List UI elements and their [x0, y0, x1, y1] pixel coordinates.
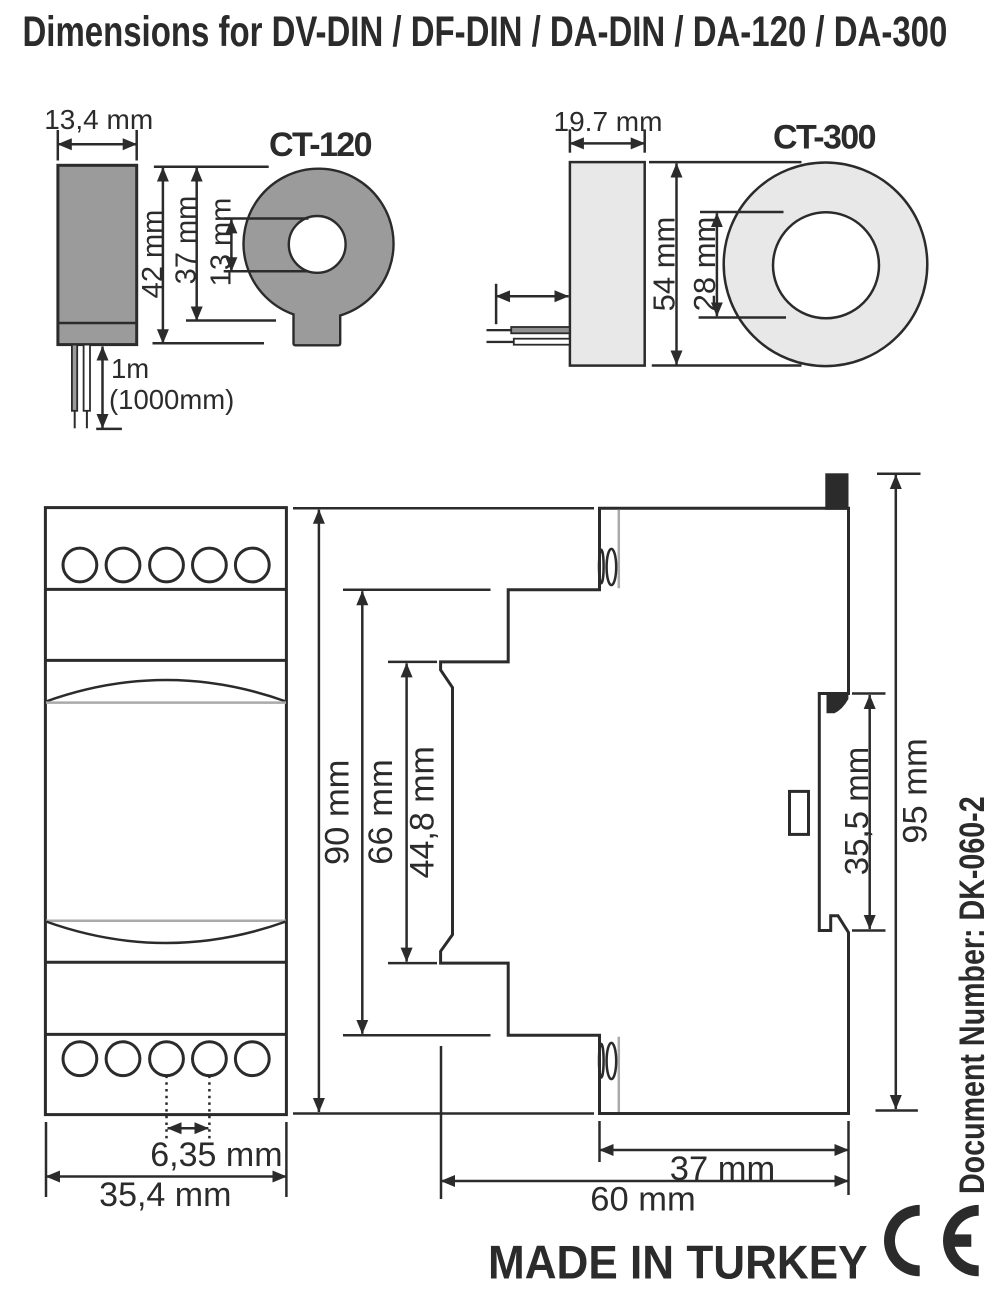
svg-text:Document Number: DK-060-2: Document Number: DK-060-2: [952, 796, 991, 1194]
svg-text:90 mm: 90 mm: [319, 760, 357, 865]
svg-text:MADE IN TURKEY: MADE IN TURKEY: [488, 1236, 868, 1289]
svg-text:Dimensions for DV-DIN / DF-DIN: Dimensions for DV-DIN / DF-DIN / DA-DIN …: [23, 9, 948, 56]
svg-text:95 mm: 95 mm: [897, 738, 935, 843]
svg-text:1m: 1m: [111, 353, 149, 384]
svg-text:42 mm: 42 mm: [137, 210, 169, 299]
svg-text:35,4 mm: 35,4 mm: [99, 1176, 231, 1214]
svg-text:19.7 mm: 19.7 mm: [554, 106, 663, 137]
svg-text:37 mm: 37 mm: [171, 196, 203, 285]
svg-text:13 mm: 13 mm: [205, 198, 237, 287]
svg-text:CT-300: CT-300: [773, 119, 876, 157]
svg-text:54 mm: 54 mm: [647, 217, 682, 312]
svg-text:60 mm: 60 mm: [590, 1181, 695, 1219]
svg-text:28 mm: 28 mm: [687, 217, 722, 312]
svg-text:(1000mm): (1000mm): [109, 384, 234, 415]
svg-text:44,8 mm: 44,8 mm: [404, 746, 442, 878]
svg-text:13,4 mm: 13,4 mm: [44, 104, 153, 135]
svg-text:CT-120: CT-120: [269, 126, 372, 164]
svg-text:6,35 mm: 6,35 mm: [150, 1136, 282, 1174]
svg-text:35,5 mm: 35,5 mm: [838, 747, 875, 875]
svg-text:66 mm: 66 mm: [362, 759, 400, 864]
